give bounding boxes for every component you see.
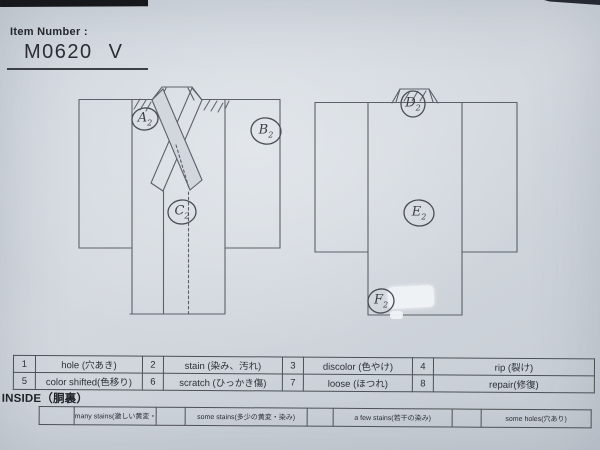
inside-option-cell: some stains(多少の黄変・染み)	[185, 407, 307, 426]
inside-checkbox-cell	[307, 408, 333, 426]
inside-option-cell: a few stains(若干の染み)	[333, 408, 452, 427]
inside-checkbox-cell	[452, 409, 481, 427]
zone-label-d: D2	[405, 96, 421, 113]
inside-checkbox-cell	[39, 406, 74, 424]
zone-label-f: F2	[374, 293, 388, 310]
legend-row-2: 5 color shifted(色移り) 6 scratch (ひっかき傷) 7…	[13, 372, 594, 393]
legend-label-cell: stain (染み、汚れ)	[163, 356, 282, 374]
condition-form-photo: Item Number : M0620V	[0, 0, 600, 450]
whiteout-patch-small	[390, 311, 403, 319]
legend-code-cell: 6	[142, 373, 163, 390]
zone-label-b: B2	[259, 123, 274, 140]
legend-label-cell: color shifted(色移り)	[35, 372, 142, 390]
inside-row: many stains(激しい黄変・染み) some stains(多少の黄変・…	[39, 406, 591, 427]
legend-label-cell: rip (裂け)	[433, 358, 594, 376]
legend-code-cell: 2	[142, 356, 163, 373]
zone-label-c: C2	[174, 204, 189, 221]
inside-option-cell: some holes(穴あり)	[481, 409, 591, 428]
legend-code-cell: 3	[282, 357, 303, 374]
condition-legend-table: 1 hole (穴あき) 2 stain (染み、汚れ) 3 discolor …	[13, 355, 595, 394]
legend-code-cell: 7	[282, 374, 303, 391]
legend-label-cell: discolor (色やけ)	[303, 357, 412, 375]
inside-checkbox-cell	[156, 407, 185, 425]
inside-options-table: many stains(激しい黄変・染み) some stains(多少の黄変・…	[39, 406, 592, 428]
kimono-front-diagram	[79, 87, 283, 314]
legend-code-cell: 1	[13, 355, 35, 372]
legend-code-cell: 4	[412, 358, 433, 375]
legend-label-cell: hole (穴あき)	[35, 355, 142, 373]
zone-label-e: E2	[412, 205, 427, 222]
legend-label-cell: repair(修復)	[433, 375, 594, 393]
legend-code-cell: 8	[412, 375, 433, 392]
inside-option-cell: many stains(激しい黄変・染み)	[74, 407, 156, 426]
legend-label-cell: loose (ほつれ)	[303, 374, 412, 392]
legend-code-cell: 5	[13, 372, 35, 389]
legend-label-cell: scratch (ひっかき傷)	[163, 373, 282, 391]
zone-label-a: A2	[138, 111, 152, 128]
inside-section-title: INSIDE（胴裏）	[2, 390, 88, 407]
kimono-back-diagram	[315, 89, 517, 315]
